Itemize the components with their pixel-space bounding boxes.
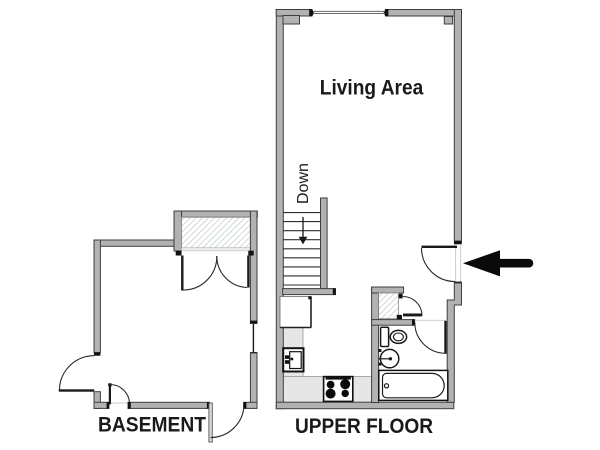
- svg-text:UPPER FLOOR: UPPER FLOOR: [295, 414, 433, 438]
- svg-text:Down: Down: [295, 163, 312, 204]
- svg-text:BASEMENT: BASEMENT: [98, 413, 206, 437]
- svg-text:Living Area: Living Area: [320, 76, 424, 100]
